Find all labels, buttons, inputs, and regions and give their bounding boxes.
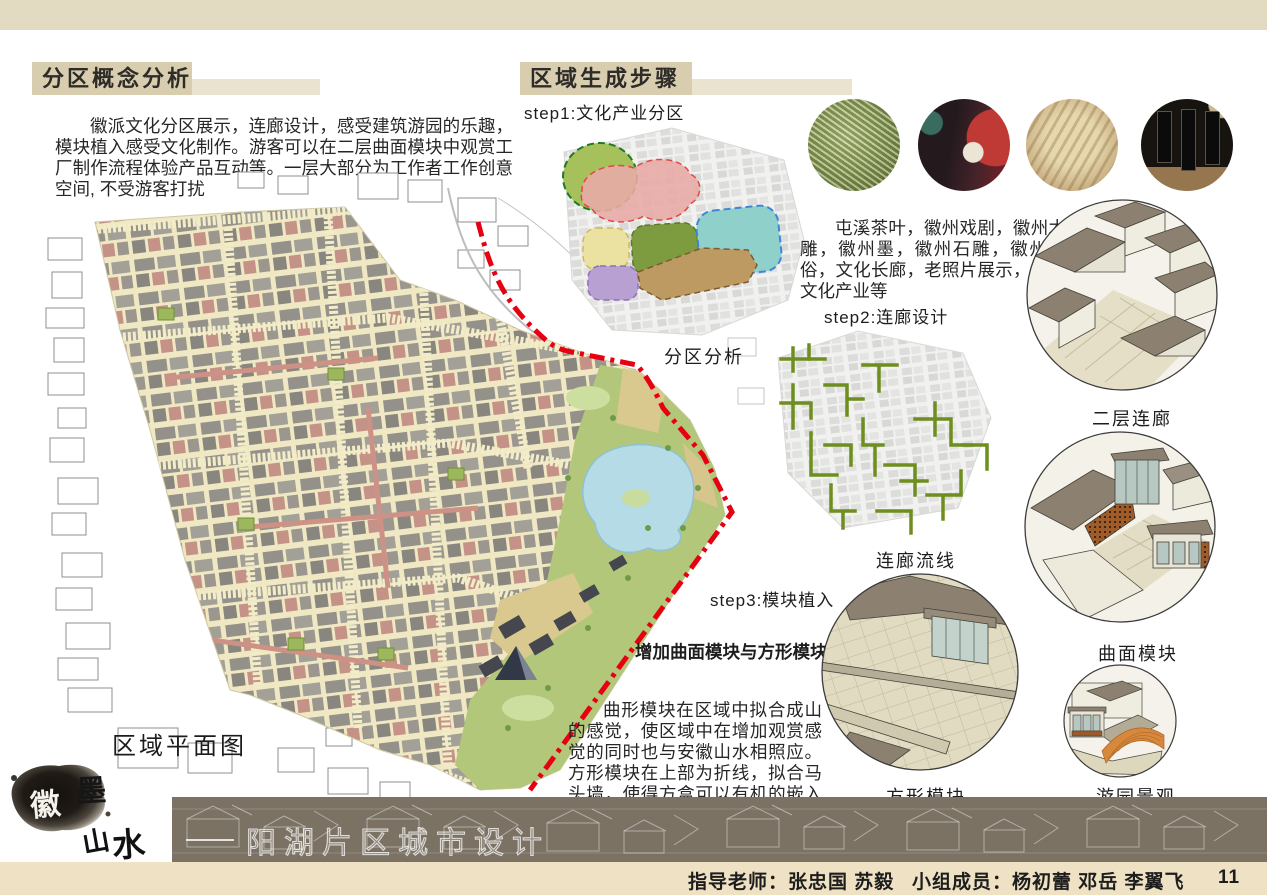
credits-members: 小组成员：杨初蕾 邓岳 李翼飞 — [912, 867, 1185, 894]
logo-char-mo: 墨 — [75, 765, 107, 811]
ink-stick — [1205, 111, 1220, 165]
design-poster: 分区概念分析 徽派文化分区展示，连廊设计，感受建筑游园的乐趣，模块植入感受文化制… — [0, 0, 1267, 895]
corridor-caption: 连廊流线 — [876, 547, 956, 573]
ink-stick — [1181, 109, 1196, 171]
step3-label: step3:模块植入 — [710, 586, 834, 611]
render-caption-curved-module: 曲面模块 — [1098, 640, 1178, 666]
ink-stick — [1157, 111, 1172, 163]
huizhou-woodcarving-photo — [1026, 99, 1118, 191]
zone-yellow — [583, 228, 629, 270]
top-beige-band — [0, 0, 1267, 30]
left-section-title: 分区概念分析 — [32, 62, 192, 95]
credits-teacher: 指导老师：张忠国 苏毅 — [688, 867, 894, 894]
render-square-module — [820, 572, 1020, 772]
render-second-floor-corridor — [1025, 198, 1219, 392]
huizhou-opera-photo — [918, 99, 1010, 191]
lawn — [566, 386, 610, 410]
zone-pink — [581, 159, 699, 221]
step3-subtitle: 增加曲面模块与方形模块 — [635, 639, 828, 664]
render-curved-module — [1023, 430, 1217, 624]
right-section-title: 区域生成步骤 — [520, 62, 692, 95]
corridor-flow-diagram — [763, 323, 1001, 548]
right-title-underline — [692, 79, 852, 95]
banner-title: 阳湖片区城市设计 — [246, 818, 550, 862]
tunxi-tea-photo — [808, 99, 900, 191]
logo-char-hui: 徽 — [28, 779, 62, 826]
page-number: 11 — [1218, 867, 1240, 889]
banner-dash-line — [186, 839, 234, 841]
logo-char-shui: 水 — [110, 817, 146, 867]
render-garden-landscape — [1062, 663, 1178, 779]
pond-island — [622, 489, 650, 507]
map-caption: 区域平面图 — [112, 726, 247, 761]
render-caption-second-floor-corridor: 二层连廊 — [1092, 405, 1172, 431]
left-title-underline — [192, 79, 320, 95]
project-banner: 阳湖片区城市设计 — [172, 797, 1267, 862]
huizhou-ink-photo — [1141, 99, 1233, 191]
zoning-caption: 分区分析 — [664, 343, 744, 369]
lawn — [502, 695, 554, 721]
zone-purple — [588, 266, 638, 300]
